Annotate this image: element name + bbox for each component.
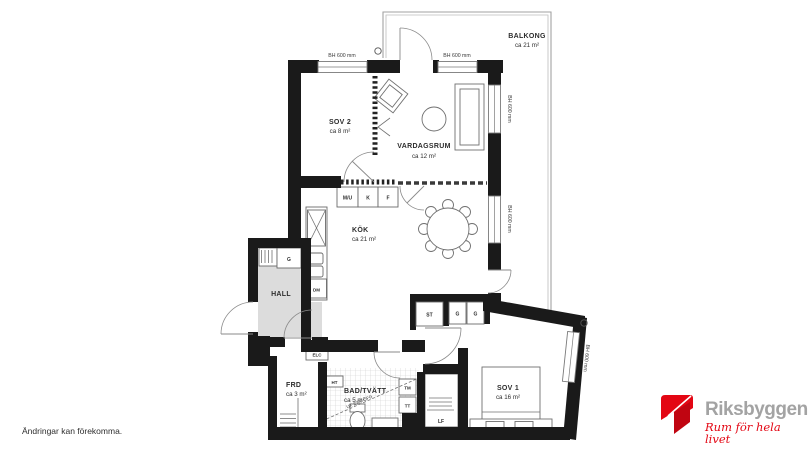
room-area-vardagsrum: ca 12 m² (412, 153, 436, 160)
cabinet-label-freezer: F (386, 196, 389, 202)
window (489, 196, 501, 243)
sov1-door (425, 328, 461, 364)
dining-table (419, 200, 478, 259)
room-label-kok: KÖK (352, 225, 368, 234)
window (318, 62, 367, 73)
room-label-balkong: BALKONG (508, 33, 546, 40)
towel-dryer-label: HT (332, 380, 338, 385)
wardrobe-label: G (456, 312, 460, 318)
room-area-sov1: ca 16 m² (496, 394, 520, 401)
window (489, 85, 501, 133)
entry-door (221, 302, 253, 334)
window-height-label: BH 600 mm (506, 95, 512, 122)
room-area-frd: ca 3 m² (286, 391, 307, 398)
dishwasher-label: DM (313, 288, 320, 293)
disclaimer-text: Ändringar kan förekomma. (22, 426, 122, 436)
room-label-sov2: SOV 2 (329, 119, 351, 126)
linen-closet-label: LF (438, 419, 444, 425)
balcony-door-top (400, 28, 432, 60)
tumble-dryer-label: TT (405, 404, 411, 409)
side-table (422, 107, 446, 131)
cabinet-label-fridge: K (366, 196, 370, 202)
room-label-bad: BAD/TVÄTT (344, 387, 387, 395)
sov2-door (344, 152, 374, 182)
window (438, 62, 477, 73)
storage-shelves (280, 398, 298, 427)
cleaning-closet-label: ST (426, 313, 432, 319)
wardrobe-label: G (474, 312, 478, 318)
sink-bowl (309, 253, 323, 264)
room-label-vardagsrum: VARDAGSRUM (397, 143, 450, 150)
brand-name: Riksbyggen (705, 400, 808, 419)
room-area-balkong: ca 21 m² (515, 42, 539, 49)
sofa (455, 84, 484, 150)
room-area-kok: ca 21 m² (352, 236, 376, 243)
wall-fold-mark (378, 118, 390, 136)
window-height-label: BH 600 mm (328, 53, 355, 59)
floorplan-drawing: BALKONG ca 21 m² SOV 2 ca 8 m² VARDAGSRU… (0, 0, 810, 455)
wardrobe-label: G (287, 257, 291, 263)
closet-block (410, 294, 490, 330)
window-height-label: BH 600 mm (443, 53, 470, 59)
floorplan-page: BALKONG ca 21 m² SOV 2 ca 8 m² VARDAGSRU… (0, 0, 810, 455)
sink-bowl (309, 266, 323, 277)
hall-wardrobe (259, 248, 301, 268)
cabinet-label-micro-oven: M/U (343, 196, 353, 202)
balcony-door-right (488, 270, 511, 293)
riksbyggen-logo-mark (660, 394, 698, 442)
room-label-sov1: SOV 1 (497, 385, 519, 392)
armchair (374, 79, 408, 113)
room-area-sov2: ca 8 m² (330, 128, 351, 135)
window-height-label: BH 600 mm (506, 205, 512, 232)
electrical-cabinet-label: ELC (313, 353, 323, 358)
kok-vardagsrum-door (400, 186, 424, 210)
room-label-frd: FRD (286, 382, 301, 389)
brand-tagline: Rum för hela livet (705, 422, 808, 445)
drainpipe-symbol (375, 48, 381, 54)
room-label-hall: HALL (271, 291, 291, 298)
riksbyggen-logo: Riksbyggen Rum för hela livet (660, 394, 805, 446)
washing-machine-label: TM (404, 386, 411, 391)
